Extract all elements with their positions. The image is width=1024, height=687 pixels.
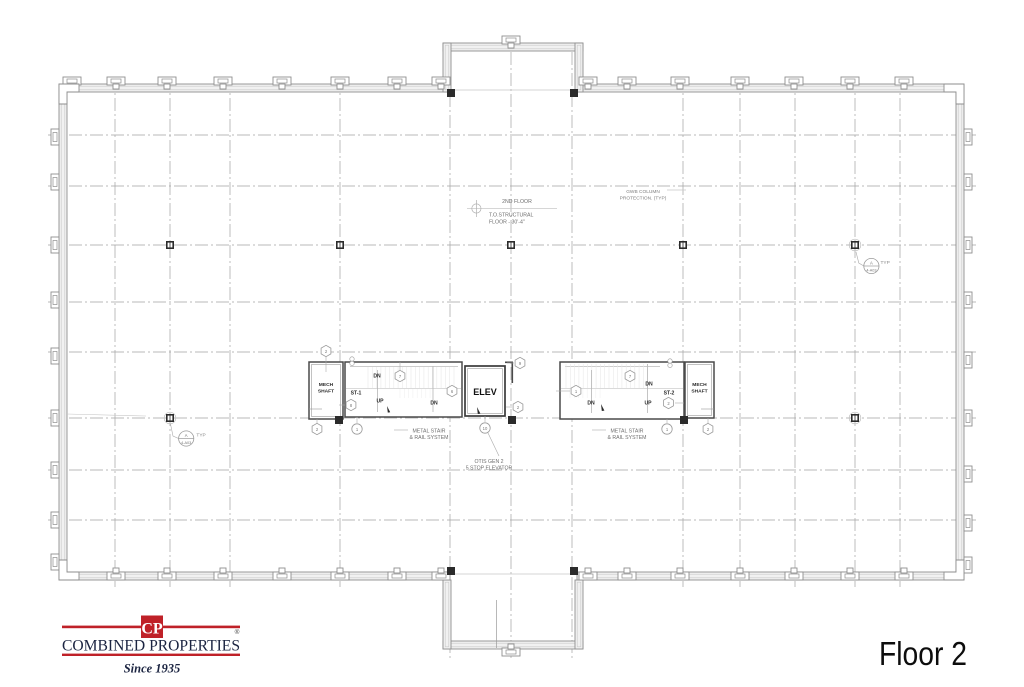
svg-text:DN: DN (587, 401, 595, 407)
svg-text:T.O.STRUCTURAL: T.O.STRUCTURAL (489, 213, 533, 219)
svg-text:METAL STAIR: METAL STAIR (610, 429, 643, 435)
svg-text:TYP: TYP (881, 260, 890, 266)
svg-text:COMBINED PROPERTIES: COMBINED PROPERTIES (62, 637, 240, 655)
svg-text:UP: UP (644, 401, 652, 407)
svg-text:UP: UP (376, 399, 384, 405)
svg-text:DN: DN (373, 374, 381, 380)
svg-text:& RAIL SYSTEM: & RAIL SYSTEM (409, 435, 448, 441)
svg-text:ST-2: ST-2 (664, 391, 675, 397)
svg-text:10: 10 (483, 426, 488, 431)
svg-text:GWB COLUMN: GWB COLUMN (626, 189, 660, 195)
svg-text:®: ® (235, 628, 240, 636)
svg-text:DN: DN (430, 401, 438, 407)
svg-text:PROTECTION. (TYP): PROTECTION. (TYP) (620, 196, 667, 202)
svg-text:4-A03: 4-A03 (866, 269, 876, 273)
svg-text:TYP: TYP (196, 433, 205, 439)
svg-text:A: A (185, 433, 188, 438)
svg-text:ELEV: ELEV (473, 387, 497, 397)
svg-text:METAL STAIR: METAL STAIR (412, 429, 445, 435)
svg-text:FLOOR - 30'-4": FLOOR - 30'-4" (489, 220, 525, 226)
svg-text:Floor 2: Floor 2 (879, 635, 967, 672)
svg-text:4-A03: 4-A03 (181, 441, 191, 445)
svg-text:MECH: MECH (319, 382, 334, 388)
svg-text:CP: CP (141, 621, 163, 638)
svg-text:SHAFT: SHAFT (691, 389, 707, 395)
svg-text:A: A (870, 261, 873, 266)
svg-text:ST-1: ST-1 (351, 391, 362, 397)
svg-text:& RAIL SYSTEM: & RAIL SYSTEM (607, 435, 646, 441)
svg-text:SHAFT: SHAFT (318, 389, 334, 395)
svg-text:MECH: MECH (692, 382, 707, 388)
svg-text:OTIS GEN 2: OTIS GEN 2 (474, 459, 503, 465)
svg-text:2ND FLOOR: 2ND FLOOR (502, 199, 532, 205)
svg-text:5 STOP ELEVATOR: 5 STOP ELEVATOR (466, 466, 513, 472)
svg-text:DN: DN (645, 382, 653, 388)
svg-text:Since 1935: Since 1935 (124, 662, 181, 676)
